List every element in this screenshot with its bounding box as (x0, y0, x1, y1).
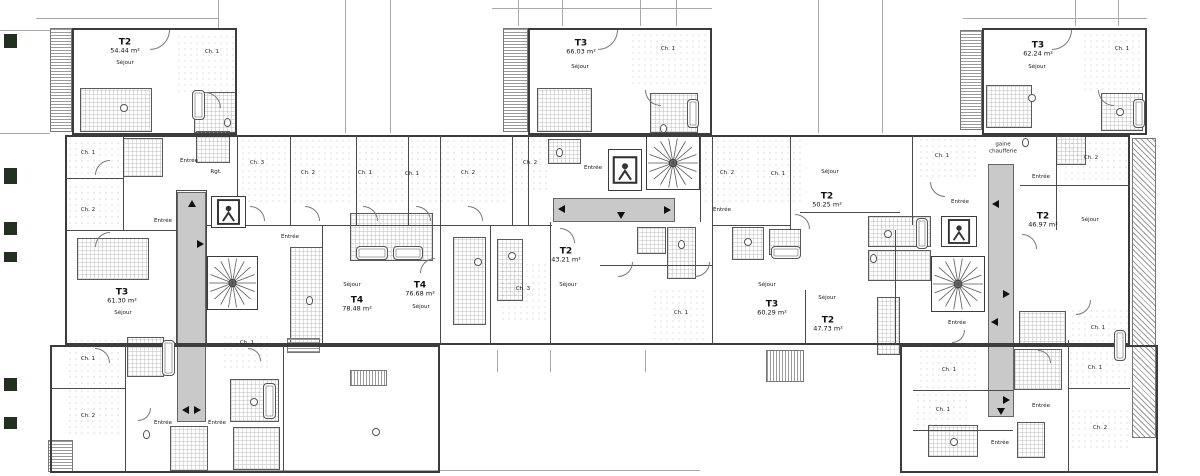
elevator-person-icon (943, 218, 975, 245)
dimension-line (497, 350, 498, 372)
direction-arrow-down (617, 212, 625, 219)
partition-wall (528, 135, 529, 225)
dimension-line (550, 350, 551, 372)
balcony-hatch (766, 350, 804, 382)
room-label: Ch. 1 (81, 150, 95, 156)
partition-wall (50, 388, 125, 389)
partition-wall (1020, 185, 1130, 186)
bathtub (192, 90, 205, 120)
toilet (678, 240, 685, 249)
sink (1028, 94, 1036, 102)
utility-line2: chaufferie (989, 148, 1017, 155)
apartment-area: 54.44 m² (110, 48, 140, 55)
room-label: Ch. 2 (1084, 155, 1098, 161)
apartment-area: 60.29 m² (757, 310, 787, 317)
apartment-label: T243.21 m² (551, 248, 581, 265)
room-label: Ch. 2 (81, 207, 95, 213)
room-label: Ch. 2 (301, 170, 315, 176)
partition-wall (440, 135, 441, 345)
partition-wall (1068, 340, 1069, 473)
balcony-hatch (503, 28, 528, 132)
direction-arrow-right (664, 206, 671, 214)
room-label: Ch. 2 (1093, 425, 1107, 431)
dimension-line (0, 30, 50, 31)
room-label: Ch. 1 (942, 367, 956, 373)
room-label: Ch. 1 (81, 356, 95, 362)
room-label: Séjour (571, 64, 589, 70)
bathtub (687, 99, 699, 128)
partition-wall (290, 135, 291, 225)
elevator (941, 216, 977, 247)
bathtub (393, 246, 423, 260)
partition-wall (356, 135, 357, 225)
apartment-area: 61.30 m² (107, 298, 137, 305)
spiral-staircase (646, 136, 700, 190)
room-label: Séjour (116, 60, 134, 66)
apartment-label: T254.44 m² (110, 39, 140, 56)
sink (950, 438, 958, 446)
dimension-line (1075, 0, 1076, 26)
utility-line1: gaine (989, 141, 1017, 148)
room-label: Ch. 1 (1088, 365, 1102, 371)
partition-wall (206, 225, 552, 226)
direction-arrow-right (194, 406, 201, 414)
apartment-area: 43.21 m² (551, 257, 581, 264)
room-label: Entrée (180, 158, 198, 164)
toilet (143, 430, 150, 439)
section-marker (4, 34, 17, 48)
room-label: Ch. 1 (935, 153, 949, 159)
building-outline (50, 345, 440, 473)
bathtub (1114, 330, 1126, 361)
bathtub (263, 383, 276, 419)
bathtub (1133, 99, 1145, 128)
section-marker (4, 168, 17, 184)
dimension-line (345, 0, 346, 133)
apartment-area: 78.48 m² (342, 306, 372, 313)
apartment-label: T360.29 m² (757, 301, 787, 318)
room-label: Entrée (208, 420, 226, 426)
room-label: Ch. 1 (405, 171, 419, 177)
room-label: Séjour (1081, 217, 1099, 223)
floor-plan-canvas: T254.44 m²T366.03 m²T362.24 m²T361.30 m²… (0, 0, 1200, 476)
sink (1116, 108, 1124, 116)
partition-wall (700, 135, 701, 222)
dimension-line (1118, 0, 1119, 26)
sink (884, 230, 892, 238)
room-label: Ch. 3 (516, 286, 530, 292)
balcony-hatch (50, 28, 72, 132)
spiral-staircase (931, 256, 985, 312)
partition-wall (712, 225, 790, 226)
partition-wall (490, 225, 491, 345)
bathtub (162, 340, 175, 376)
dimension-line (640, 0, 641, 26)
direction-arrow-left (991, 318, 998, 326)
partition-wall (322, 225, 323, 345)
apartment-label: T366.03 m² (566, 40, 596, 57)
partition-wall (512, 135, 513, 225)
partition-wall (913, 430, 1013, 431)
section-marker (4, 417, 17, 429)
partition-wall (800, 212, 900, 213)
room-label: Entrée (1032, 174, 1050, 180)
dimension-line (676, 0, 677, 26)
room-label: Entrée (948, 320, 966, 326)
partition-wall (550, 222, 551, 345)
dimension-line (963, 18, 1147, 19)
apartment-label: T250.25 m² (812, 193, 842, 210)
room-label: Entrée (584, 165, 602, 171)
elevator (608, 149, 642, 191)
apartment-label: T476.68 m² (405, 282, 435, 299)
partition-wall (125, 345, 126, 473)
partition-wall (283, 345, 284, 473)
direction-arrow-down (997, 408, 1005, 415)
room-label: Séjour (114, 310, 132, 316)
section-marker (4, 222, 17, 235)
partition-wall (65, 178, 123, 179)
toilet (870, 254, 877, 263)
room-label: Ch. 1 (1091, 325, 1105, 331)
room-label: Séjour (1028, 64, 1046, 70)
toilet (1022, 138, 1029, 147)
room-label: Ch. 2 (81, 413, 95, 419)
bathtub (916, 218, 928, 249)
sink (120, 104, 128, 112)
partition-wall (123, 135, 124, 230)
dimension-line (518, 0, 519, 26)
room-label: Séjour (821, 169, 839, 175)
sink (372, 428, 380, 436)
partition-wall (408, 135, 409, 225)
elevator (211, 196, 246, 228)
direction-arrow-left (182, 406, 189, 414)
room-label: Ch. 1 (1115, 46, 1129, 52)
apartment-area: 66.03 m² (566, 49, 596, 56)
dimension-line (36, 18, 218, 19)
direction-arrow-left (992, 200, 999, 208)
apartment-label: T361.30 m² (107, 289, 137, 306)
apartment-area: 76.68 m² (405, 291, 435, 298)
apartment-area: 50.25 m² (812, 202, 842, 209)
balcony-hatch (960, 30, 982, 130)
partition-wall (895, 230, 896, 345)
toilet (224, 118, 231, 127)
direction-arrow-right (197, 240, 204, 248)
room-label: Ch. 3 (250, 160, 264, 166)
apartment-area: 46.97 m² (1028, 222, 1058, 229)
partition-wall (65, 230, 176, 231)
room-label: Entrée (991, 440, 1009, 446)
partition-wall (712, 135, 713, 345)
toilet (556, 148, 563, 157)
room-label: Entrée (154, 420, 172, 426)
partition-wall (176, 190, 177, 345)
dimension-line (390, 0, 391, 133)
dimension-line (562, 0, 563, 26)
room-label: Rgt. (210, 169, 221, 175)
section-marker (4, 252, 17, 262)
partition-wall (805, 290, 806, 345)
room-label: Entrée (713, 207, 731, 213)
dimension-line (218, 0, 219, 30)
direction-arrow-left (558, 205, 565, 213)
dimension-line (492, 8, 712, 9)
sink (744, 238, 752, 246)
sink (474, 258, 482, 266)
sink (250, 398, 258, 406)
room-label: Entrée (281, 234, 299, 240)
room-label: Entrée (1032, 403, 1050, 409)
room-label: Séjour (412, 304, 430, 310)
dimension-line (0, 133, 50, 134)
partition-wall (913, 390, 1013, 391)
toilet (306, 296, 313, 305)
room-label: Ch. 2 (523, 160, 537, 166)
room-label: Séjour (758, 282, 776, 288)
elevator-person-icon (610, 151, 640, 189)
dimension-line (818, 0, 819, 133)
dimension-line (645, 350, 646, 372)
partition-wall (912, 135, 913, 225)
room-label: Ch. 1 (358, 170, 372, 176)
room-label: Ch. 1 (936, 407, 950, 413)
apartment-label: T246.97 m² (1028, 213, 1058, 230)
room-label: Ch. 2 (461, 170, 475, 176)
room-label: Ch. 1 (771, 171, 785, 177)
utility-label: gainechaufferie (989, 141, 1017, 154)
apartment-area: 47.73 m² (813, 326, 843, 333)
apartment-label: T247.73 m² (813, 317, 843, 334)
partition-wall (176, 190, 206, 191)
room-label: Ch. 1 (674, 310, 688, 316)
room-label: Ch. 2 (720, 170, 734, 176)
spiral-staircase (207, 256, 258, 310)
room-label: Séjour (559, 282, 577, 288)
elevator-person-icon (213, 198, 244, 226)
room-label: Séjour (343, 282, 361, 288)
direction-arrow-up (188, 200, 196, 207)
room-label: Ch. 1 (240, 340, 254, 346)
bathtub (356, 246, 388, 260)
room-label: Ch. 1 (205, 49, 219, 55)
apartment-label: T362.24 m² (1023, 42, 1053, 59)
bathtub (771, 246, 801, 259)
dimension-line (882, 0, 883, 133)
room-label: Entrée (154, 218, 172, 224)
partition-wall (790, 135, 791, 230)
direction-arrow-right (1003, 396, 1010, 404)
apartment-label: T478.48 m² (342, 297, 372, 314)
partition-wall (1068, 388, 1130, 389)
section-marker (4, 378, 17, 391)
sink (508, 252, 516, 260)
room-label: Ch. 1 (661, 46, 675, 52)
toilet (660, 124, 667, 133)
apartment-area: 62.24 m² (1023, 51, 1053, 58)
building-outline (528, 28, 712, 135)
room-label: Entrée (951, 199, 969, 205)
room-label: Séjour (818, 295, 836, 301)
direction-arrow-right (1003, 290, 1010, 298)
